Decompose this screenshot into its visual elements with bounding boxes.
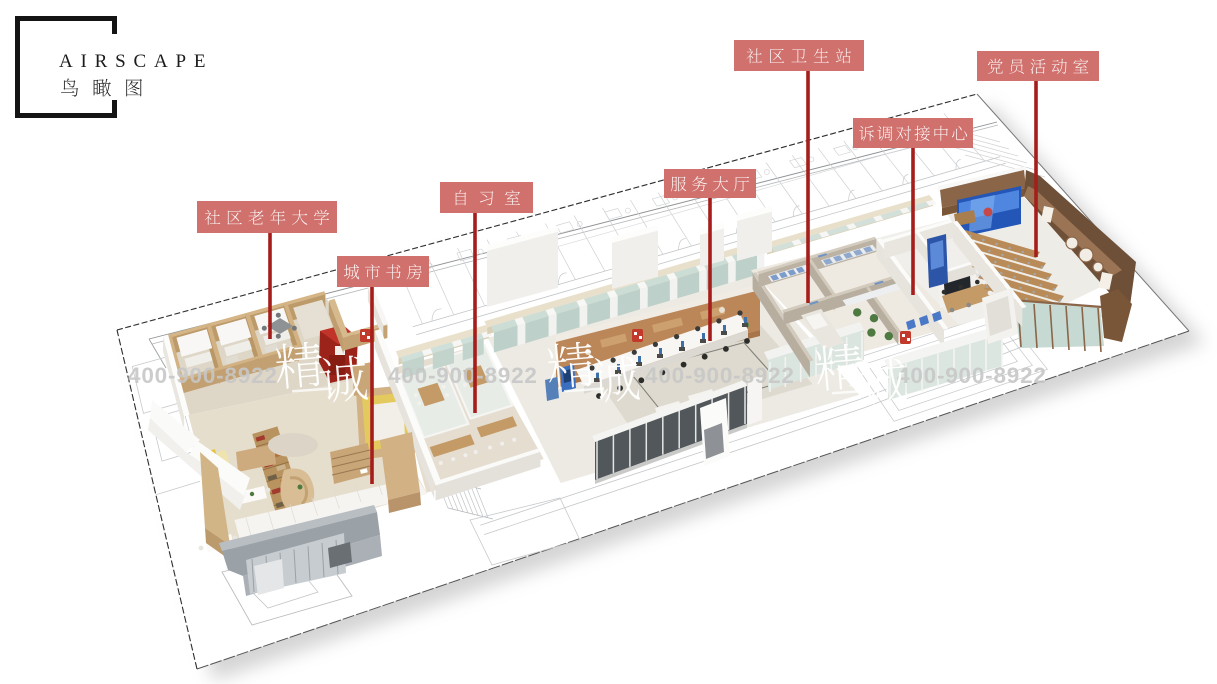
svg-text:400-900-8922: 400-900-8922 xyxy=(128,363,278,388)
svg-text:AIRSCAPE: AIRSCAPE xyxy=(59,51,213,72)
svg-text:400-900-8922: 400-900-8922 xyxy=(645,363,795,388)
svg-text:400-900-8922: 400-900-8922 xyxy=(897,363,1047,388)
svg-text:400-900-8922: 400-900-8922 xyxy=(388,363,538,388)
